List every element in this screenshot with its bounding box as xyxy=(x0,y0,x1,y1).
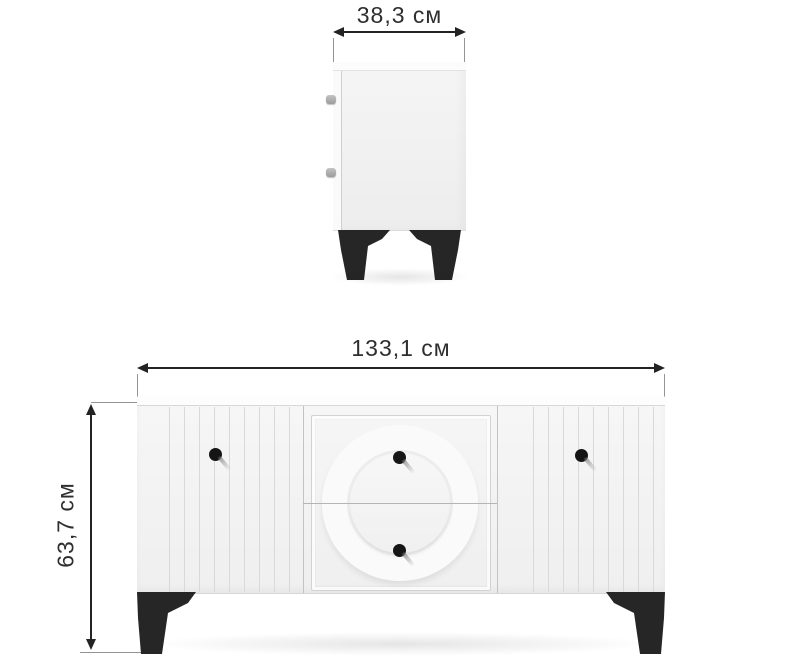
right-door xyxy=(498,406,665,593)
product-dimensions-diagram: 38,3 см 133,1 см xyxy=(0,0,800,664)
cabinet-side-top-panel xyxy=(333,62,466,71)
arrowhead-right-icon xyxy=(455,27,466,37)
extension-line xyxy=(464,38,465,62)
cabinet-front xyxy=(137,396,665,664)
cabinet-top-panel xyxy=(137,396,665,406)
depth-dimension-line xyxy=(333,26,466,38)
drawer-divider xyxy=(303,503,497,504)
extension-line xyxy=(80,652,144,653)
extension-line xyxy=(333,38,334,62)
door-knob-icon xyxy=(575,449,588,462)
cabinet-side-body xyxy=(333,62,466,231)
slat-grooves xyxy=(533,407,656,592)
panel-divider xyxy=(497,406,498,593)
slat-grooves xyxy=(169,407,292,592)
height-dimension-line xyxy=(85,404,97,650)
extension-line xyxy=(91,402,138,403)
drawer-knob-icon xyxy=(393,451,406,464)
panel-divider xyxy=(303,406,304,593)
height-dimension-label: 63,7 см xyxy=(53,482,80,567)
arrowhead-down-icon xyxy=(86,639,96,650)
arrowhead-right-icon xyxy=(654,363,665,373)
depth-dimension-label: 38,3 см xyxy=(333,2,466,29)
side-knob-icon xyxy=(326,168,336,177)
floor-shadow xyxy=(145,632,657,656)
door-knob-icon xyxy=(209,448,222,461)
width-dimension-line xyxy=(137,362,665,374)
width-dimension-label: 133,1 см xyxy=(137,335,665,362)
drawer-knob-icon xyxy=(393,544,406,557)
extension-line xyxy=(664,374,665,398)
left-door xyxy=(137,406,303,593)
side-knob-icon xyxy=(326,95,336,104)
floor-shadow xyxy=(330,268,470,286)
cabinet-front-body xyxy=(137,406,665,594)
